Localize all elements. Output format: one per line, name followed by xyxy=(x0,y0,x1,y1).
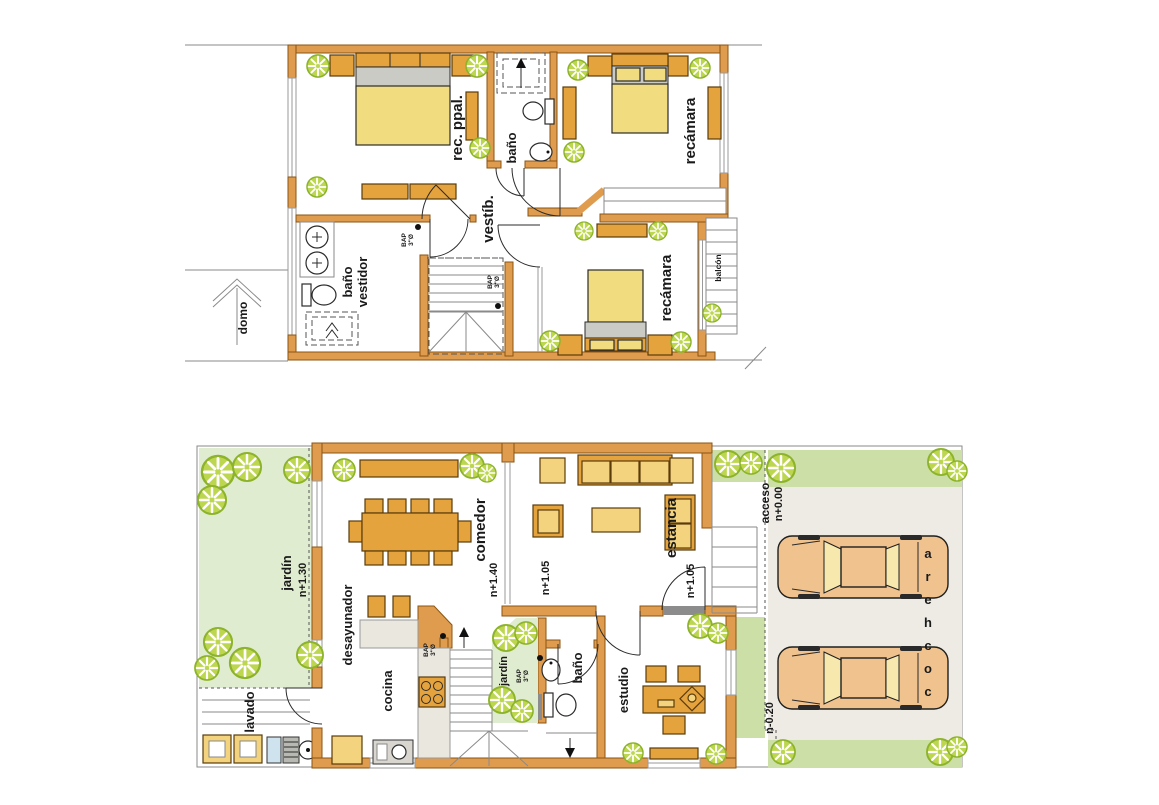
level-hall: n+1.05 xyxy=(685,564,697,599)
label-master-bedroom: rec. ppal. xyxy=(449,95,466,161)
svg-text:3"Ø: 3"Ø xyxy=(430,644,437,656)
toilet xyxy=(544,693,553,717)
dining-furniture xyxy=(349,460,471,565)
car-1 xyxy=(778,535,948,599)
label-vestibule: vestíb. xyxy=(480,195,497,243)
level-access: n+0.00 xyxy=(773,487,785,522)
label-dining: comedor xyxy=(472,498,489,562)
refrigerator xyxy=(332,736,362,764)
label-skylight: domo xyxy=(236,302,250,335)
dining-table xyxy=(362,513,458,551)
label-study: estudio xyxy=(616,667,631,713)
bar-stool xyxy=(368,596,385,617)
upper-floor-plan: domo xyxy=(185,45,766,369)
label-bedroom-bottom: recámara xyxy=(658,254,675,321)
bap-label: BAP xyxy=(423,642,430,656)
coffee-table xyxy=(592,508,640,532)
floor-plan-drawing: domo xyxy=(0,0,1159,805)
svg-text:3"Ø: 3"Ø xyxy=(494,276,501,288)
label-living: estancia xyxy=(663,497,680,558)
car-2 xyxy=(778,646,948,710)
level-dining: n+1.40 xyxy=(488,563,500,598)
level-living: n+1.05 xyxy=(540,561,552,596)
level-garage: n-0.20 xyxy=(764,702,776,734)
label-balcony: balcón xyxy=(713,254,723,281)
svg-text:baño: baño xyxy=(340,266,355,297)
label-access: acceso xyxy=(758,483,772,524)
garage xyxy=(768,450,962,768)
label-garden: jardín xyxy=(279,555,294,591)
toilet xyxy=(545,99,554,124)
bap-label: BAP xyxy=(487,274,494,288)
toilet xyxy=(302,284,311,306)
label-lower-bathroom: baño xyxy=(570,652,585,683)
svg-text:vestidor: vestidor xyxy=(355,257,370,308)
label-inner-garden: jardín xyxy=(498,656,510,687)
buffet xyxy=(360,460,458,477)
bookshelf xyxy=(650,748,698,759)
green-strip-access-bottom xyxy=(736,617,765,738)
label-laundry: lavado xyxy=(242,691,257,732)
label-upper-bathroom: baño xyxy=(504,132,519,163)
svg-text:3"Ø: 3"Ø xyxy=(523,670,530,682)
label-breakfast: desayunador xyxy=(340,585,355,666)
label-kitchen: cocina xyxy=(380,670,395,712)
svg-text:3"Ø: 3"Ø xyxy=(408,234,415,246)
label-bedroom-top: recámara xyxy=(682,97,699,164)
laundry-area xyxy=(199,688,317,763)
level-garden: n+1.30 xyxy=(297,563,309,598)
bar-stool xyxy=(393,596,410,617)
bap-label: BAP xyxy=(401,232,408,246)
lower-floor-plan: BAP 3"Ø BAP 3"Ø xyxy=(195,443,967,768)
bap-label: BAP xyxy=(516,668,523,682)
floor-plan-canvas: domo xyxy=(0,0,1159,805)
